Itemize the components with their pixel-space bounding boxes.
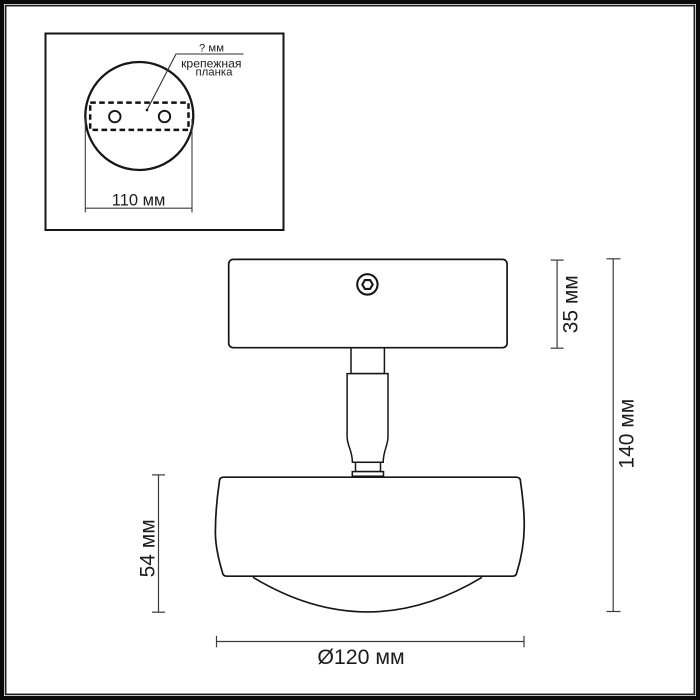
svg-text:Ø120 мм: Ø120 мм xyxy=(317,645,404,669)
svg-text:? мм: ? мм xyxy=(199,42,224,54)
svg-text:140 мм: 140 мм xyxy=(615,399,638,469)
svg-text:110 мм: 110 мм xyxy=(112,192,166,210)
svg-text:54 мм: 54 мм xyxy=(137,519,160,577)
svg-text:35 мм: 35 мм xyxy=(559,275,582,333)
svg-text:планка: планка xyxy=(195,66,233,78)
